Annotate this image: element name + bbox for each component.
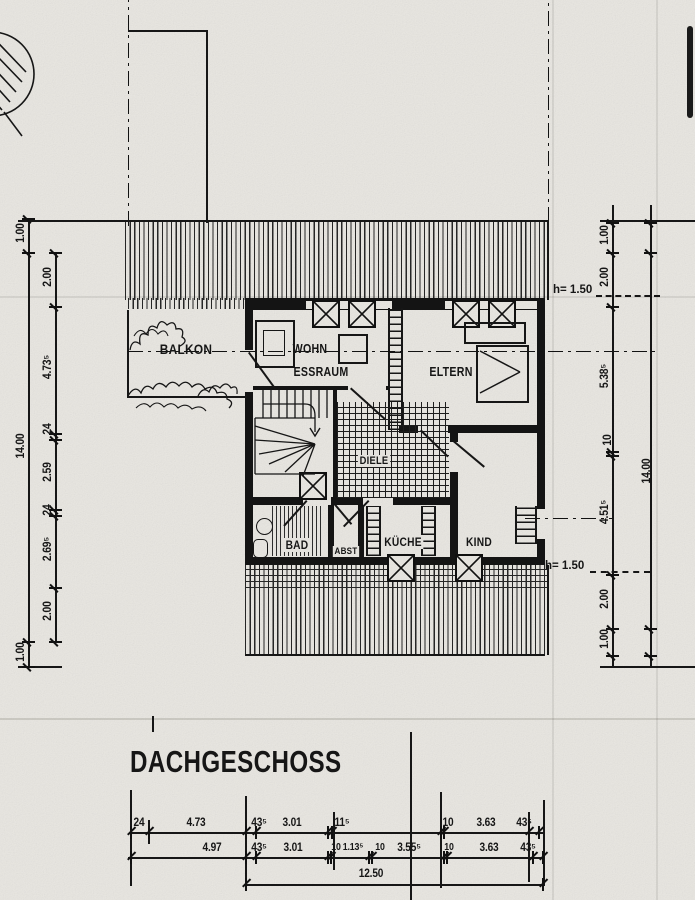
roof-edge: [547, 222, 549, 300]
bed: [476, 345, 529, 403]
dimension-label: 2.00: [42, 256, 54, 297]
dimension-label: 3.01: [283, 842, 302, 854]
room-label-eltern: ELTERN: [429, 365, 472, 379]
kind-furniture: [515, 506, 537, 544]
dimension-label: 3.55⁵: [397, 842, 421, 854]
dimension-label: 3.01: [282, 817, 301, 829]
axis-line: [548, 0, 549, 222]
dimension-label: 1.00: [15, 212, 27, 253]
dimension-label: 43⁵: [251, 817, 266, 829]
scanned-floor-plan-page: BALKON WOHN ESSRAUM ELTERN DIELE BAD ABS…: [0, 0, 695, 900]
axis-line: [128, 0, 129, 226]
dormer-outline: [128, 30, 208, 32]
room-label-kueche: KÜCHE: [383, 535, 424, 549]
dimension-line: [128, 857, 545, 859]
wall-left: [245, 310, 253, 565]
dimension-line: [28, 218, 30, 668]
toilet: [253, 539, 268, 558]
dimension-label: 1.00: [599, 214, 611, 255]
plant-scribble: [196, 372, 240, 404]
dimension-label: 43⁵: [516, 817, 531, 829]
dimension-label: 3.63: [479, 842, 498, 854]
dimension-label: 11⁵: [335, 817, 350, 829]
crease-line: [656, 0, 658, 900]
sofa-table: [263, 330, 285, 356]
room-label-kind: KIND: [466, 535, 492, 549]
room-label-diele: DIELE: [358, 455, 390, 467]
dimension-label: 14.00: [641, 450, 653, 491]
page-title: DACHGESCHOSS: [130, 744, 342, 780]
room-label-balkon: BALKON: [160, 341, 212, 357]
roof-window-icon: [348, 300, 376, 328]
room-label-abst: ABST: [333, 546, 359, 557]
dimension-label: 4.73⁵: [42, 346, 54, 387]
window-kind: [537, 508, 545, 540]
dimension-label: 10: [444, 842, 453, 853]
dimension-label: 10: [331, 842, 340, 853]
dimension-line: [650, 205, 652, 668]
roof-edge: [547, 565, 549, 655]
dimension-line: [130, 832, 545, 834]
sink: [256, 518, 273, 535]
dimension-label: 1.13⁵: [343, 842, 363, 853]
dimension-label: 1.00: [599, 618, 611, 659]
door-swing: [334, 504, 352, 525]
dimension-label: 2.59: [42, 451, 54, 492]
roof-window-icon: [312, 300, 340, 328]
dimension-label: 4.51⁵: [599, 491, 611, 532]
roof-height-label-top: h= 1.50: [553, 284, 592, 296]
dimension-label: 43⁵: [251, 842, 266, 854]
dimension-label: 24: [42, 489, 54, 530]
roof-height-line: [590, 571, 650, 573]
roof-window-icon: [455, 554, 483, 582]
dimension-label: 10: [602, 419, 614, 460]
dimension-label: 2.00: [599, 256, 611, 297]
wardrobe: [464, 322, 526, 344]
dimension-label: 3.63: [476, 817, 495, 829]
kitchen-counter: [366, 506, 381, 556]
dormer-outline: [206, 30, 208, 223]
dimension-label: 4.73: [186, 817, 205, 829]
dimension-label: 2.69⁵: [42, 528, 54, 569]
dimension-line: [600, 666, 695, 668]
dimension-label: 24: [42, 408, 54, 449]
stairs: [253, 388, 337, 480]
crease-line: [552, 0, 554, 900]
roof-hatch-top: [125, 222, 548, 300]
door-opening-kind: [450, 442, 458, 472]
dimension-label: 2.00: [599, 578, 611, 619]
dimension-label: 1.00: [15, 631, 27, 672]
dimension-line: [18, 220, 128, 222]
diele-floor-hatch: [337, 402, 449, 498]
room-label-bad: BAD: [284, 538, 310, 552]
dimension-total-label: 12.50: [359, 868, 383, 880]
roof-edge: [245, 654, 545, 656]
dimension-label: 43⁵: [520, 842, 535, 854]
wall-diele-bottom: [245, 497, 455, 505]
dining-table: [338, 334, 368, 364]
room-label-essraum: ESSRAUM: [294, 365, 349, 379]
tick-mark: [152, 716, 154, 732]
dimension-label: 5.38⁵: [599, 355, 611, 396]
dimension-label: 10: [375, 842, 384, 853]
dimension-label: 24: [134, 817, 145, 829]
crease-line: [0, 718, 695, 720]
dimension-label: 4.97: [202, 842, 221, 854]
dimension-label: 14.00: [15, 425, 27, 466]
dimension-label: 10: [443, 817, 454, 829]
roof-height-label-bottom: h= 1.50: [545, 560, 584, 572]
scan-smudge: [687, 26, 693, 118]
dimension-line: [245, 884, 542, 886]
dimension-label: 2.00: [42, 590, 54, 631]
roof-window-icon: [387, 554, 415, 582]
room-label-wohn: WOHN: [293, 342, 328, 356]
tree-icon: [0, 16, 40, 141]
